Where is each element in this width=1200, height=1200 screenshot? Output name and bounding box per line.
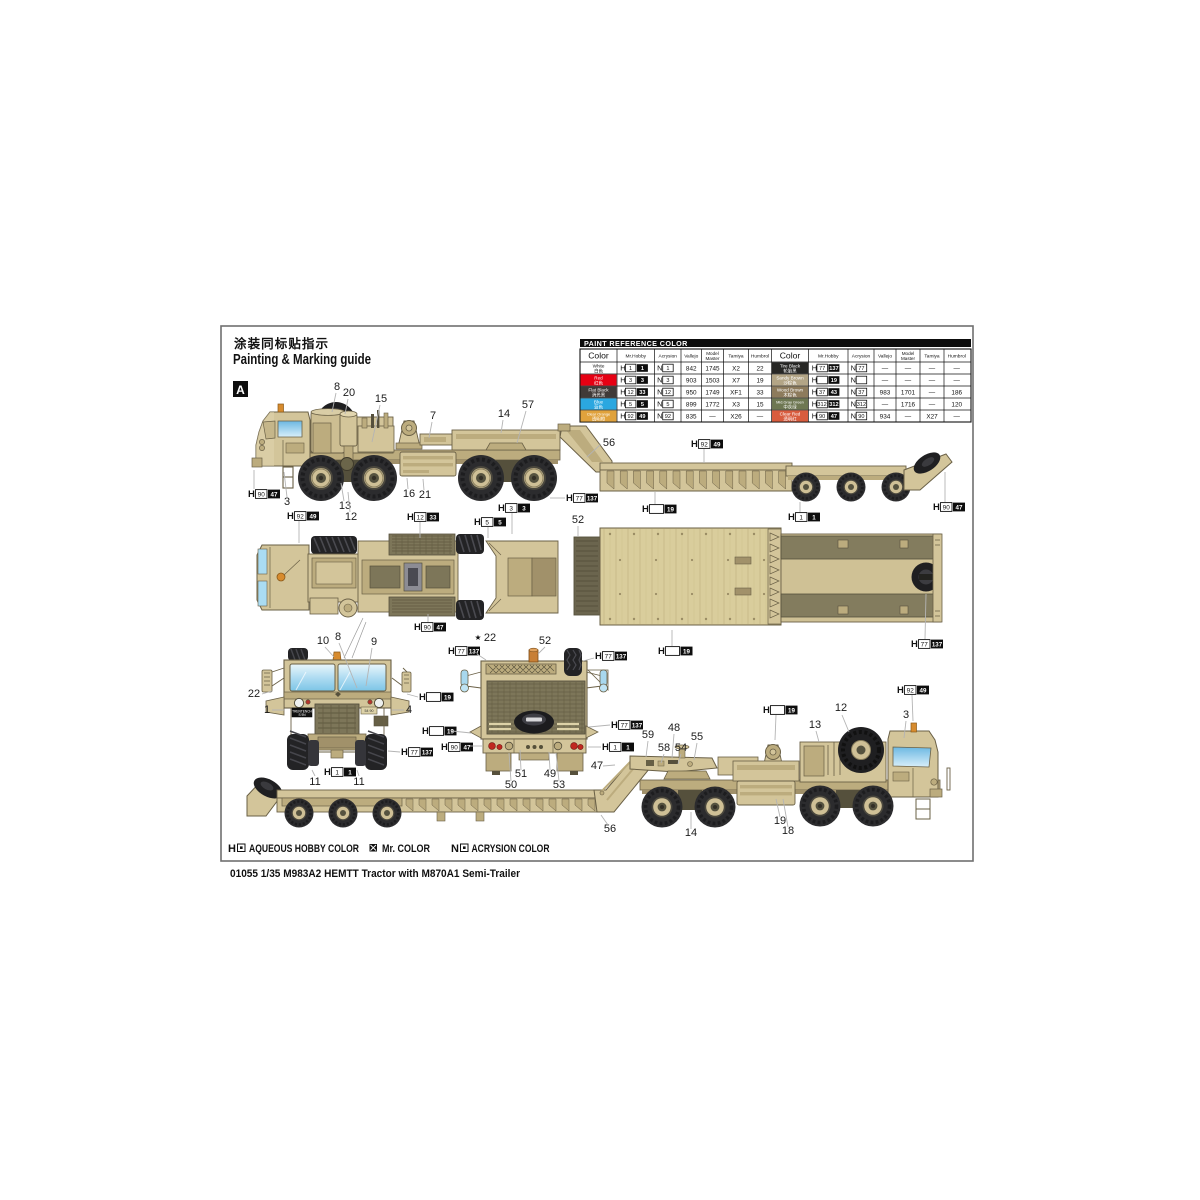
svg-text:1749: 1749 xyxy=(705,389,720,396)
svg-text:137: 137 xyxy=(616,654,627,661)
svg-text:54 90: 54 90 xyxy=(365,709,374,713)
svg-text:Humbrol: Humbrol xyxy=(948,354,966,360)
svg-text:19: 19 xyxy=(756,377,764,384)
svg-text:N: N xyxy=(851,412,856,421)
svg-text:H: H xyxy=(812,388,817,397)
svg-text:3: 3 xyxy=(522,506,526,513)
svg-text:H: H xyxy=(658,646,665,657)
svg-text:90: 90 xyxy=(858,414,864,420)
svg-text:842: 842 xyxy=(686,365,697,372)
svg-text:5: 5 xyxy=(485,520,489,527)
svg-text:H: H xyxy=(602,742,609,753)
svg-text:19: 19 xyxy=(444,695,451,702)
svg-text:Acrysion: Acrysion xyxy=(659,354,678,360)
svg-text:3: 3 xyxy=(629,378,632,384)
svg-text:中灰绿: 中灰绿 xyxy=(783,404,797,411)
svg-text:1701: 1701 xyxy=(901,389,916,396)
svg-text:312: 312 xyxy=(829,402,838,408)
svg-text:Mr. COLOR: Mr. COLOR xyxy=(382,843,430,855)
svg-text:934: 934 xyxy=(880,413,891,420)
svg-text:47: 47 xyxy=(271,492,278,499)
svg-text:N: N xyxy=(657,400,662,409)
svg-text:19: 19 xyxy=(788,708,795,715)
svg-text:H: H xyxy=(287,511,294,522)
svg-text:N: N xyxy=(851,400,856,409)
svg-text:20: 20 xyxy=(343,387,355,399)
svg-text:H: H xyxy=(620,400,625,409)
svg-text:—: — xyxy=(954,377,961,384)
svg-text:5: 5 xyxy=(641,402,644,408)
svg-text:21: 21 xyxy=(419,489,431,501)
svg-text:77: 77 xyxy=(458,649,466,656)
svg-text:★: ★ xyxy=(475,633,482,642)
svg-text:Mr.Hobby: Mr.Hobby xyxy=(625,354,646,360)
svg-text:1: 1 xyxy=(629,366,632,372)
svg-text:15: 15 xyxy=(375,393,387,405)
svg-text:8: 8 xyxy=(335,631,341,643)
svg-text:1: 1 xyxy=(264,704,270,716)
svg-text:37: 37 xyxy=(819,390,825,396)
svg-text:H: H xyxy=(228,843,236,855)
svg-text:—: — xyxy=(929,365,936,372)
svg-text:312: 312 xyxy=(857,402,866,408)
svg-text:XF1: XF1 xyxy=(730,389,742,396)
svg-text:AQUEOUS HOBBY COLOR: AQUEOUS HOBBY COLOR xyxy=(249,843,359,855)
svg-text:19: 19 xyxy=(667,507,674,514)
svg-text:透明橙: 透明橙 xyxy=(592,416,606,423)
svg-text:47: 47 xyxy=(956,505,963,512)
svg-text:12: 12 xyxy=(627,390,633,396)
svg-text:3: 3 xyxy=(284,496,290,508)
svg-text:47: 47 xyxy=(437,625,444,632)
svg-text:Master: Master xyxy=(901,356,916,361)
svg-text:H: H xyxy=(620,364,625,373)
svg-text:13: 13 xyxy=(809,719,821,731)
svg-text:H: H xyxy=(498,503,505,514)
svg-text:H: H xyxy=(401,747,408,758)
svg-text:—: — xyxy=(954,413,961,420)
svg-text:11: 11 xyxy=(309,776,320,788)
svg-text:—: — xyxy=(757,413,764,420)
svg-text:49: 49 xyxy=(310,514,317,521)
svg-text:7: 7 xyxy=(430,410,436,422)
svg-text:14: 14 xyxy=(498,408,510,420)
svg-text:903: 903 xyxy=(686,377,697,384)
svg-text:57: 57 xyxy=(522,399,534,411)
svg-text:137: 137 xyxy=(587,496,598,503)
svg-text:90: 90 xyxy=(819,414,825,420)
svg-text:22: 22 xyxy=(484,632,496,644)
svg-text:H: H xyxy=(324,767,331,778)
svg-text:92: 92 xyxy=(665,414,671,420)
svg-text:12: 12 xyxy=(665,390,671,396)
svg-text:H: H xyxy=(441,742,448,753)
svg-text:120: 120 xyxy=(951,401,962,408)
svg-text:899: 899 xyxy=(686,401,697,408)
svg-text:—: — xyxy=(905,413,912,420)
svg-text:52: 52 xyxy=(539,635,551,647)
svg-text:92: 92 xyxy=(297,514,305,521)
svg-text:H: H xyxy=(763,705,770,716)
svg-text:1: 1 xyxy=(335,770,339,777)
svg-text:12: 12 xyxy=(417,515,425,522)
svg-text:48: 48 xyxy=(668,722,680,734)
svg-text:5: 5 xyxy=(666,402,669,408)
svg-text:3: 3 xyxy=(509,506,513,513)
svg-text:90: 90 xyxy=(943,505,951,512)
svg-text:835: 835 xyxy=(686,413,697,420)
svg-text:N: N xyxy=(851,364,856,373)
svg-text:312: 312 xyxy=(817,402,826,408)
svg-text:43: 43 xyxy=(831,390,837,396)
svg-text:H: H xyxy=(474,517,481,528)
svg-text:3: 3 xyxy=(666,378,669,384)
svg-text:77: 77 xyxy=(621,723,629,730)
svg-text:1: 1 xyxy=(348,770,352,777)
svg-text:消光黑: 消光黑 xyxy=(592,392,606,399)
svg-text:Tamiya: Tamiya xyxy=(728,354,744,360)
svg-text:Acrysion: Acrysion xyxy=(852,354,871,360)
svg-text:—: — xyxy=(882,401,889,408)
svg-text:33: 33 xyxy=(639,390,645,396)
svg-text:Vallejo: Vallejo xyxy=(878,354,892,360)
svg-text:92: 92 xyxy=(701,442,709,449)
svg-text:ACRYSION COLOR: ACRYSION COLOR xyxy=(472,843,550,855)
svg-text:—: — xyxy=(882,377,889,384)
svg-text:1: 1 xyxy=(613,745,617,752)
svg-text:H: H xyxy=(419,692,426,703)
svg-text:H: H xyxy=(566,493,573,504)
svg-text:S 9N: S 9N xyxy=(298,713,306,717)
svg-text:H: H xyxy=(933,502,940,513)
svg-text:186: 186 xyxy=(951,389,962,396)
svg-text:—: — xyxy=(929,389,936,396)
svg-text:N: N xyxy=(657,376,662,385)
svg-text:19: 19 xyxy=(447,729,454,736)
svg-text:92: 92 xyxy=(627,414,633,420)
svg-text:12: 12 xyxy=(835,702,847,714)
svg-text:47: 47 xyxy=(591,760,603,772)
svg-text:X2: X2 xyxy=(732,365,740,372)
svg-text:19: 19 xyxy=(831,378,837,384)
svg-text:H: H xyxy=(611,720,618,731)
svg-text:H: H xyxy=(414,622,421,633)
svg-text:55: 55 xyxy=(691,731,703,743)
svg-text:9: 9 xyxy=(371,636,377,648)
svg-text:—: — xyxy=(954,365,961,372)
svg-text:4: 4 xyxy=(406,704,412,716)
svg-text:H: H xyxy=(248,489,255,500)
svg-text:49: 49 xyxy=(920,688,927,695)
svg-text:33: 33 xyxy=(756,389,764,396)
svg-text:H: H xyxy=(620,412,625,421)
svg-text:H: H xyxy=(812,376,817,385)
svg-text:H: H xyxy=(620,376,625,385)
svg-text:H: H xyxy=(812,400,817,409)
svg-text:X27: X27 xyxy=(926,413,938,420)
svg-text:950: 950 xyxy=(686,389,697,396)
svg-text:H: H xyxy=(620,388,625,397)
svg-text:红色: 红色 xyxy=(594,380,603,386)
svg-text:5: 5 xyxy=(629,402,632,408)
svg-text:49: 49 xyxy=(714,442,721,449)
svg-text:137: 137 xyxy=(932,642,943,649)
svg-text:01055 1/35 M983A2 HEMTT Trac: 01055 1/35 M983A2 HEMTT Tractor with M87… xyxy=(230,868,521,880)
svg-text:52: 52 xyxy=(572,514,584,526)
svg-text:N: N xyxy=(851,388,856,397)
svg-text:1716: 1716 xyxy=(901,401,916,408)
svg-text:H: H xyxy=(407,512,414,523)
svg-text:47: 47 xyxy=(831,414,837,420)
svg-text:—: — xyxy=(709,413,716,420)
svg-text:22: 22 xyxy=(248,688,260,700)
svg-text:11: 11 xyxy=(353,776,364,788)
svg-text:N: N xyxy=(851,376,856,385)
svg-text:1: 1 xyxy=(641,366,644,372)
svg-text:15: 15 xyxy=(756,401,764,408)
svg-text:A: A xyxy=(236,383,245,397)
svg-text:56: 56 xyxy=(603,437,615,449)
svg-text:H: H xyxy=(812,412,817,421)
svg-text:1: 1 xyxy=(799,515,803,522)
svg-text:90: 90 xyxy=(424,625,432,632)
svg-text:透明红: 透明红 xyxy=(783,416,797,423)
svg-text:22: 22 xyxy=(756,365,764,372)
svg-text:77: 77 xyxy=(411,750,419,757)
svg-text:—: — xyxy=(929,377,936,384)
svg-text:10: 10 xyxy=(317,635,329,647)
svg-text:47: 47 xyxy=(464,745,471,752)
svg-text:5: 5 xyxy=(498,520,502,527)
svg-text:19: 19 xyxy=(683,649,690,656)
svg-text:轮胎黑: 轮胎黑 xyxy=(783,368,797,375)
svg-text:137: 137 xyxy=(422,750,433,757)
svg-text:—: — xyxy=(905,365,912,372)
svg-text:X7: X7 xyxy=(732,377,740,384)
svg-text:—: — xyxy=(882,365,889,372)
svg-text:H: H xyxy=(691,439,698,450)
svg-text:983: 983 xyxy=(880,389,891,396)
svg-text:12: 12 xyxy=(345,511,357,523)
svg-text:涂装同标贴指示: 涂装同标贴指示 xyxy=(234,336,330,351)
svg-text:1503: 1503 xyxy=(705,377,720,384)
svg-text:Mr.Hobby: Mr.Hobby xyxy=(818,354,839,360)
svg-text:N: N xyxy=(657,364,662,373)
svg-text:H: H xyxy=(595,651,602,662)
svg-text:58: 58 xyxy=(658,742,670,754)
svg-text:77: 77 xyxy=(605,654,613,661)
svg-text:木棕色: 木棕色 xyxy=(783,392,797,399)
svg-text:1: 1 xyxy=(666,366,669,372)
svg-text:—: — xyxy=(905,377,912,384)
svg-text:H: H xyxy=(448,646,455,657)
svg-text:H: H xyxy=(642,504,649,515)
svg-text:沙棕色: 沙棕色 xyxy=(783,380,797,387)
svg-text:3: 3 xyxy=(641,378,644,384)
svg-text:3: 3 xyxy=(903,709,909,721)
svg-text:N: N xyxy=(657,388,662,397)
svg-text:16: 16 xyxy=(403,488,415,500)
svg-text:—: — xyxy=(929,401,936,408)
svg-text:Vallejo: Vallejo xyxy=(684,354,698,360)
svg-text:54: 54 xyxy=(675,742,687,754)
svg-text:Master: Master xyxy=(705,356,720,361)
svg-text:Humbrol: Humbrol xyxy=(751,354,769,360)
svg-text:X26: X26 xyxy=(730,413,742,420)
svg-text:90: 90 xyxy=(258,492,266,499)
svg-text:37: 37 xyxy=(858,390,864,396)
svg-text:77: 77 xyxy=(921,642,929,649)
svg-text:77: 77 xyxy=(819,366,825,372)
svg-text:1745: 1745 xyxy=(705,365,720,372)
svg-text:59: 59 xyxy=(642,729,654,741)
svg-text:137: 137 xyxy=(829,366,838,372)
svg-text:Color: Color xyxy=(588,351,609,361)
svg-text:77: 77 xyxy=(576,496,584,503)
svg-text:蓝色: 蓝色 xyxy=(594,404,603,410)
svg-text:Tamiya: Tamiya xyxy=(924,354,940,360)
svg-text:H: H xyxy=(911,639,918,650)
svg-text:H: H xyxy=(788,512,795,523)
svg-text:33: 33 xyxy=(430,515,437,522)
svg-text:56: 56 xyxy=(604,823,616,835)
svg-text:1772: 1772 xyxy=(705,401,720,408)
svg-text:49: 49 xyxy=(639,414,645,420)
svg-text:H: H xyxy=(422,726,429,737)
svg-text:PAINT REFERENCE COLOR: PAINT REFERENCE COLOR xyxy=(584,339,688,348)
svg-text:77: 77 xyxy=(858,366,864,372)
svg-text:1: 1 xyxy=(626,745,630,752)
svg-text:白色: 白色 xyxy=(594,368,603,375)
svg-text:Painting & Marking guide: Painting & Marking guide xyxy=(233,352,371,368)
svg-text:H: H xyxy=(897,685,904,696)
svg-text:8: 8 xyxy=(334,381,340,393)
svg-text:92: 92 xyxy=(907,688,915,695)
svg-text:90: 90 xyxy=(451,745,459,752)
svg-text:N: N xyxy=(657,412,662,421)
svg-text:N: N xyxy=(451,843,459,855)
svg-text:1: 1 xyxy=(812,515,816,522)
svg-text:X3: X3 xyxy=(732,401,740,408)
svg-text:Color: Color xyxy=(780,351,801,361)
svg-text:H: H xyxy=(812,364,817,373)
